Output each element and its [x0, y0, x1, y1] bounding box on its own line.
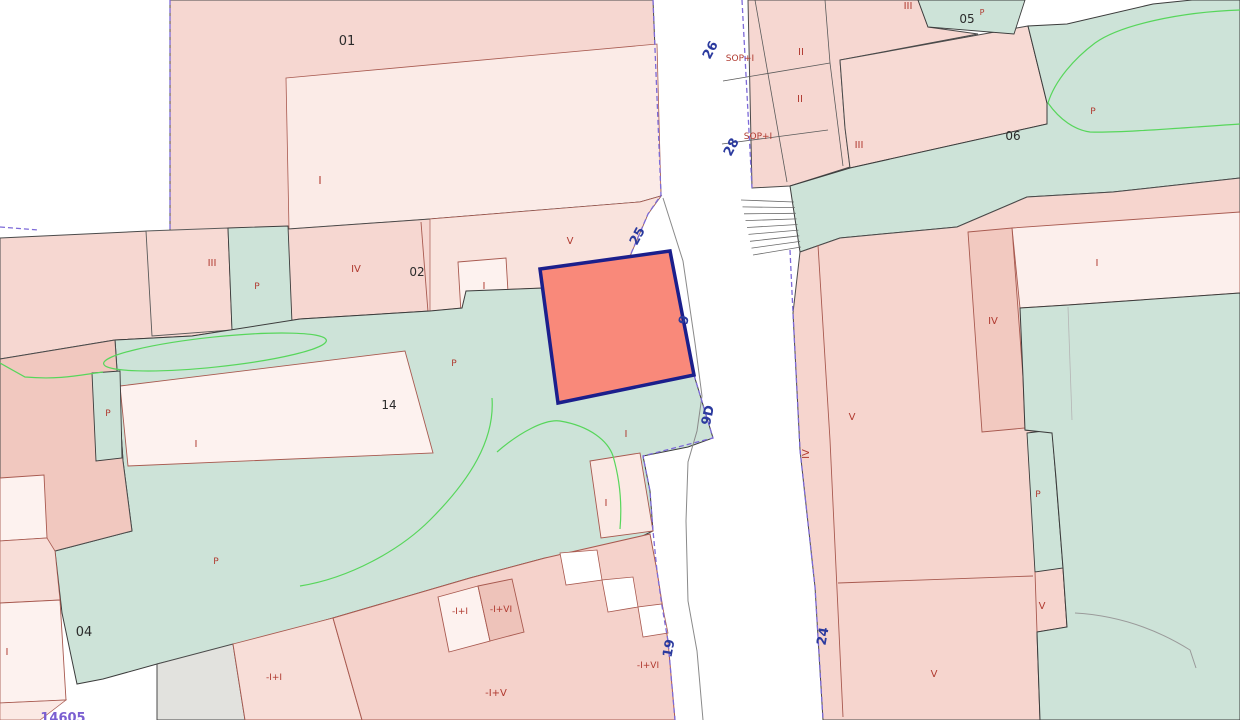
parcel-number-04: 04: [76, 625, 93, 640]
floor-code-v-3: V: [1039, 601, 1046, 612]
floor-code-i-2: I: [483, 281, 486, 292]
cadastral-map: 01I26SOP+IIIIII05PII28SOP+IIII06PIIIPIV0…: [0, 0, 1240, 720]
floor-code-iv-3: IV: [801, 449, 812, 459]
parcel-III-strip[interactable]: [146, 228, 232, 336]
parcel-white-left[interactable]: [0, 475, 47, 541]
floor-code-iii-3: III: [208, 258, 217, 269]
street-number-19: 19: [661, 638, 679, 658]
street-number-9d: 9D: [699, 404, 718, 427]
floor-code-v-1: V: [567, 236, 574, 247]
parcel-strip-left[interactable]: [0, 538, 60, 603]
floor-code-p-3: P: [451, 359, 457, 369]
floor-code-iii-2: III: [855, 140, 864, 151]
building-step-notch-3: [638, 604, 668, 637]
parcel-number-14: 14: [381, 398, 396, 412]
floor-code-v-4: V: [931, 669, 938, 680]
floor-code-iv-2: IV: [988, 316, 998, 327]
floor-code-p-4: P: [1035, 490, 1041, 500]
floor-code-i-4: I: [625, 429, 628, 440]
floor-code-b1: -I+I: [452, 607, 468, 617]
parcel-number-01: 01: [339, 34, 356, 49]
stairs: [741, 200, 801, 255]
parcel-I-right[interactable]: [1012, 212, 1240, 308]
building-step-notch-1: [560, 550, 602, 585]
floor-code-ii-2: II: [797, 94, 803, 105]
floor-code-p-1: P: [1090, 107, 1096, 117]
map-canvas: 01I26SOP+IIIIII05PII28SOP+IIII06PIIIPIV0…: [0, 0, 1240, 720]
floor-code-iv-1: IV: [351, 264, 361, 275]
floor-code-sop-2: SOP+I: [744, 132, 772, 142]
floor-code-i-3: I: [195, 439, 198, 450]
street-number-28: 28: [721, 136, 743, 159]
courtyard-small-left[interactable]: [228, 226, 292, 330]
floor-code-i-5: I: [1096, 258, 1099, 269]
street-number-24: 24: [815, 626, 833, 646]
parcel-number-06: 06: [1005, 129, 1020, 143]
parcel-I-bottomleft[interactable]: [0, 600, 66, 703]
floor-code-b3: -I+V: [485, 688, 507, 699]
floor-code-b2: -I+VI: [490, 605, 512, 615]
floor-code-b5: -I+I: [266, 673, 282, 683]
map-reference: 14605: [40, 711, 85, 720]
selected-parcel[interactable]: [540, 251, 694, 403]
parcel-number-05: 05: [959, 12, 974, 26]
floor-code-p-5: P: [105, 409, 111, 419]
parcel-number-02: 02: [409, 265, 424, 279]
floor-code-b4: -I+VI: [637, 661, 659, 671]
floor-code-iii-1: III: [904, 1, 913, 12]
floor-code-p-6: P: [213, 557, 219, 567]
floor-code-v-2: V: [849, 412, 856, 423]
street-number-26: 26: [700, 39, 722, 62]
floor-code-i-6: I: [605, 498, 608, 509]
floor-code-ii-1: II: [798, 47, 804, 58]
floor-sup-p: P: [980, 8, 985, 17]
floor-code-p-2: P: [254, 282, 260, 292]
floor-code-sop-1: SOP+I: [726, 54, 754, 64]
floor-code-i-7: I: [6, 647, 9, 658]
building-step-notch-2: [602, 577, 638, 612]
floor-code-i-1: I: [318, 174, 321, 187]
